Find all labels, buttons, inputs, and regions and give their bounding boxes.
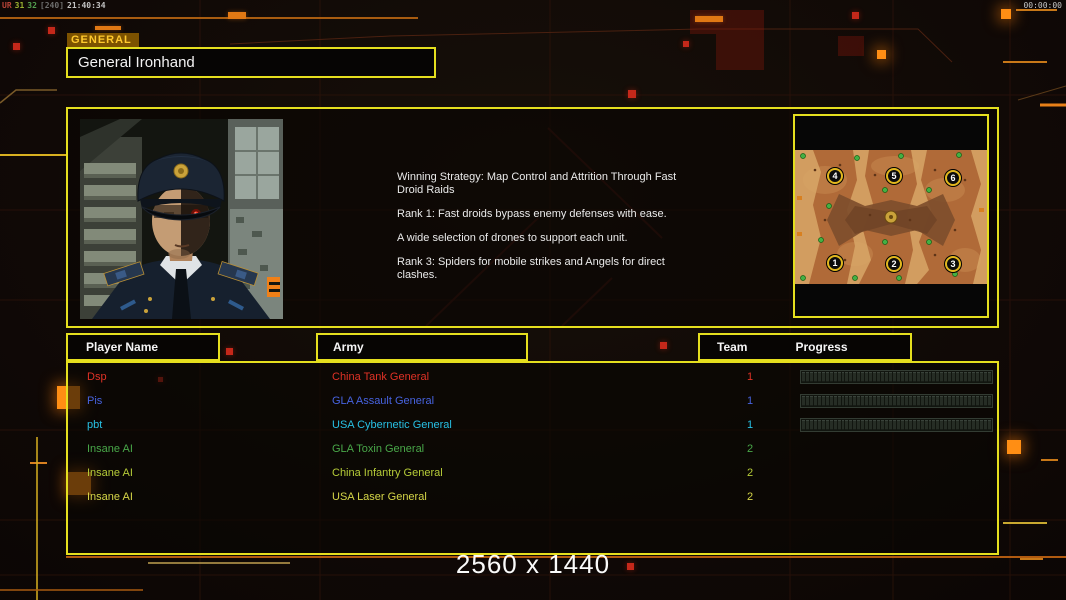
player-name: Pis: [87, 395, 102, 407]
strategy-briefing: Winning Strategy: Map Control and Attrit…: [397, 171, 695, 293]
decor-square: [226, 348, 233, 355]
decor-square: [852, 12, 859, 19]
decor-bar: [228, 12, 246, 19]
player-row: Insane AI USA Laser General 2: [68, 486, 997, 510]
player-army: USA Cybernetic General: [332, 419, 452, 431]
osd-clock: 21:40:34: [67, 1, 106, 10]
general-tab-label: GENERAL: [67, 33, 139, 47]
player-row: Insane AI GLA Toxin General 2: [68, 438, 997, 462]
decor-square: [1007, 440, 1021, 454]
osd-app: UR: [2, 1, 12, 10]
header-progress: Progress: [747, 340, 847, 354]
decor-square: [13, 43, 20, 50]
resolution-label: 2560 x 1440: [0, 549, 1066, 580]
start-position-marker: 1: [827, 255, 843, 271]
player-table: Dsp China Tank General 1 Pis GLA Assault…: [66, 361, 999, 555]
decor-block: [838, 36, 864, 56]
player-army: China Infantry General: [332, 467, 443, 479]
osd-limit: [240]: [40, 1, 64, 10]
map-terrain: [795, 116, 987, 316]
player-team: 1: [740, 395, 760, 407]
player-row: Insane AI China Infantry General 2: [68, 462, 997, 486]
player-row: pbt USA Cybernetic General 1: [68, 414, 997, 438]
player-army: China Tank General: [332, 371, 429, 383]
session-timer: 00:00:00: [1023, 1, 1062, 10]
general-name-box: General Ironhand: [66, 47, 436, 78]
start-position-marker: 6: [945, 170, 961, 186]
player-name: Insane AI: [87, 467, 133, 479]
player-row: Pis GLA Assault General 1: [68, 390, 997, 414]
briefing-line: Winning Strategy: Map Control and Attrit…: [397, 171, 695, 197]
decor-square: [660, 342, 667, 349]
decor-bar: [95, 26, 121, 30]
general-portrait: [80, 119, 283, 319]
start-position-marker: 5: [886, 168, 902, 184]
player-team: 2: [740, 467, 760, 479]
briefing-line: A wide selection of drones to support ea…: [397, 232, 695, 245]
decor-square: [877, 50, 886, 59]
header-player-name: Player Name: [66, 333, 220, 361]
load-progress-bar: [800, 370, 993, 384]
osd-fps2: 32: [27, 1, 37, 10]
start-position-marker: 3: [945, 256, 961, 272]
fps-overlay: UR3132[240]21:40:34: [2, 1, 109, 10]
player-army: USA Laser General: [332, 491, 427, 503]
decor-block: [690, 10, 764, 34]
player-name: Dsp: [87, 371, 107, 383]
osd-fps: 31: [15, 1, 25, 10]
player-team: 2: [740, 443, 760, 455]
decor-square: [683, 41, 689, 47]
player-team: 2: [740, 491, 760, 503]
start-position-marker: 4: [827, 168, 843, 184]
decor-block: [716, 34, 764, 70]
decor-bar: [695, 16, 723, 22]
briefing-line: Rank 3: Spiders for mobile strikes and A…: [397, 256, 695, 282]
load-progress-bar: [800, 394, 993, 408]
player-name: Insane AI: [87, 491, 133, 503]
start-position-marker: 2: [886, 256, 902, 272]
decor-square: [628, 90, 636, 98]
player-army: GLA Toxin General: [332, 443, 424, 455]
decor-square: [48, 27, 55, 34]
player-army: GLA Assault General: [332, 395, 434, 407]
map-preview: 1 2 3 4 5 6: [793, 114, 989, 318]
decor-square: [1001, 9, 1011, 19]
header-team-progress: Team Progress: [698, 333, 912, 361]
header-army: Army: [316, 333, 528, 361]
load-progress-bar: [800, 418, 993, 432]
general-name: General Ironhand: [68, 54, 195, 71]
player-team: 1: [740, 371, 760, 383]
player-team: 1: [740, 419, 760, 431]
briefing-line: Rank 1: Fast droids bypass enemy defense…: [397, 208, 695, 221]
player-name: pbt: [87, 419, 102, 431]
player-name: Insane AI: [87, 443, 133, 455]
loading-screen: UR3132[240]21:40:34 00:00:00 GENERAL Gen…: [0, 0, 1066, 600]
general-info-panel: Winning Strategy: Map Control and Attrit…: [66, 107, 999, 328]
header-team: Team: [700, 340, 747, 354]
player-row: Dsp China Tank General 1: [68, 366, 997, 390]
portrait-art: [80, 119, 283, 319]
